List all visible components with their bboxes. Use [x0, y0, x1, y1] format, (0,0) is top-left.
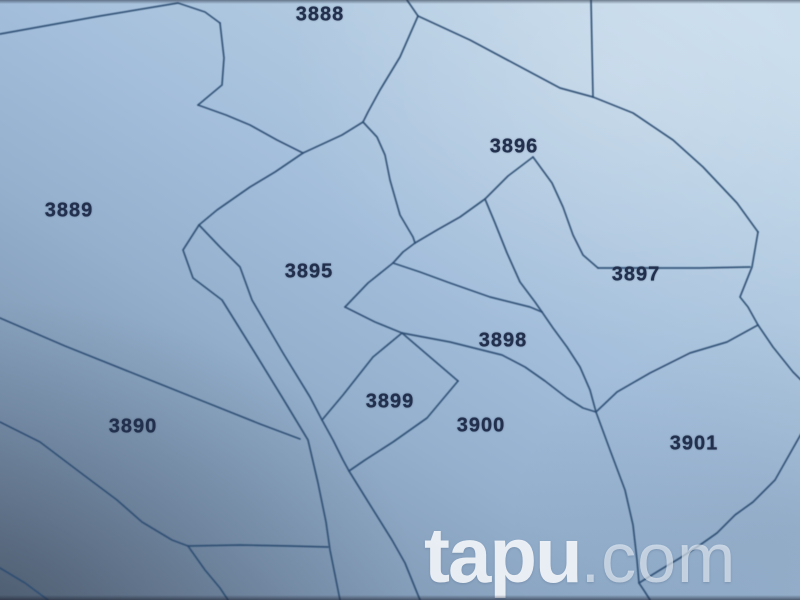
boundary-line-wedge-top-edge	[393, 263, 542, 312]
boundary-line-parcel3888-top-vertex	[407, 0, 418, 16]
parcel-label-3901: 3901	[670, 433, 719, 456]
boundary-line-parcel3888-east-edge	[363, 16, 418, 122]
boundary-line-steep-branch	[485, 199, 542, 312]
boundary-line-parcel3899-northeast	[402, 333, 458, 381]
boundary-line-bottom-left-corner-line	[0, 568, 48, 600]
boundary-line-parcel3900-east	[596, 412, 650, 600]
boundary-line-northeast-diagonal	[593, 97, 758, 232]
parcel-label-3897: 3897	[612, 264, 661, 287]
parcel-label-3890: 3890	[109, 416, 158, 439]
boundary-line-valley-south-line	[188, 546, 228, 600]
boundary-line-parcel3890-southwest	[0, 422, 188, 546]
boundary-line-parcel3895-east	[363, 122, 415, 243]
boundary-line-road-fork-diagonal	[199, 153, 303, 225]
boundary-line-parcel3896-southeast	[533, 157, 598, 268]
cadastral-map-photo: 3888388938903895389638973898389939003901…	[0, 0, 800, 600]
boundary-line-east-chain	[740, 232, 758, 325]
boundary-line-north-vertical	[591, 0, 593, 97]
parcel-label-3898: 3898	[479, 330, 528, 353]
boundary-line-wedge-east-edge	[542, 312, 596, 412]
boundary-line-parcel3888-south-zigzag	[198, 105, 303, 153]
parcel-label-3889: 3889	[45, 200, 94, 223]
boundary-line-junction-to-m-link	[303, 122, 363, 153]
boundary-line-parcel3888-west-edge	[198, 23, 224, 105]
boundary-line-valley-horizontal	[188, 545, 328, 547]
boundary-line-parcel3901-northwest	[597, 325, 758, 411]
parcel-boundary-network	[0, 0, 800, 600]
boundary-line-wedge-west-edge	[345, 263, 393, 307]
boundary-line-parcel3896-southwest	[415, 157, 533, 243]
parcel-label-3888: 3888	[296, 4, 345, 27]
boundary-line-ridge-to-junction	[418, 16, 593, 97]
boundary-line-v2-wedge-link	[393, 243, 415, 263]
parcel-label-3896: 3896	[490, 136, 539, 159]
parcel-label-3895: 3895	[285, 261, 334, 284]
boundary-line-east-exit	[758, 325, 800, 380]
boundary-line-wedge-bottom-west	[345, 307, 402, 333]
boundary-line-parcel3901-south	[639, 434, 800, 583]
parcel-label-3899: 3899	[366, 391, 415, 414]
boundary-line-north-boundary-3889	[0, 3, 220, 34]
parcel-label-3900: 3900	[457, 415, 506, 438]
